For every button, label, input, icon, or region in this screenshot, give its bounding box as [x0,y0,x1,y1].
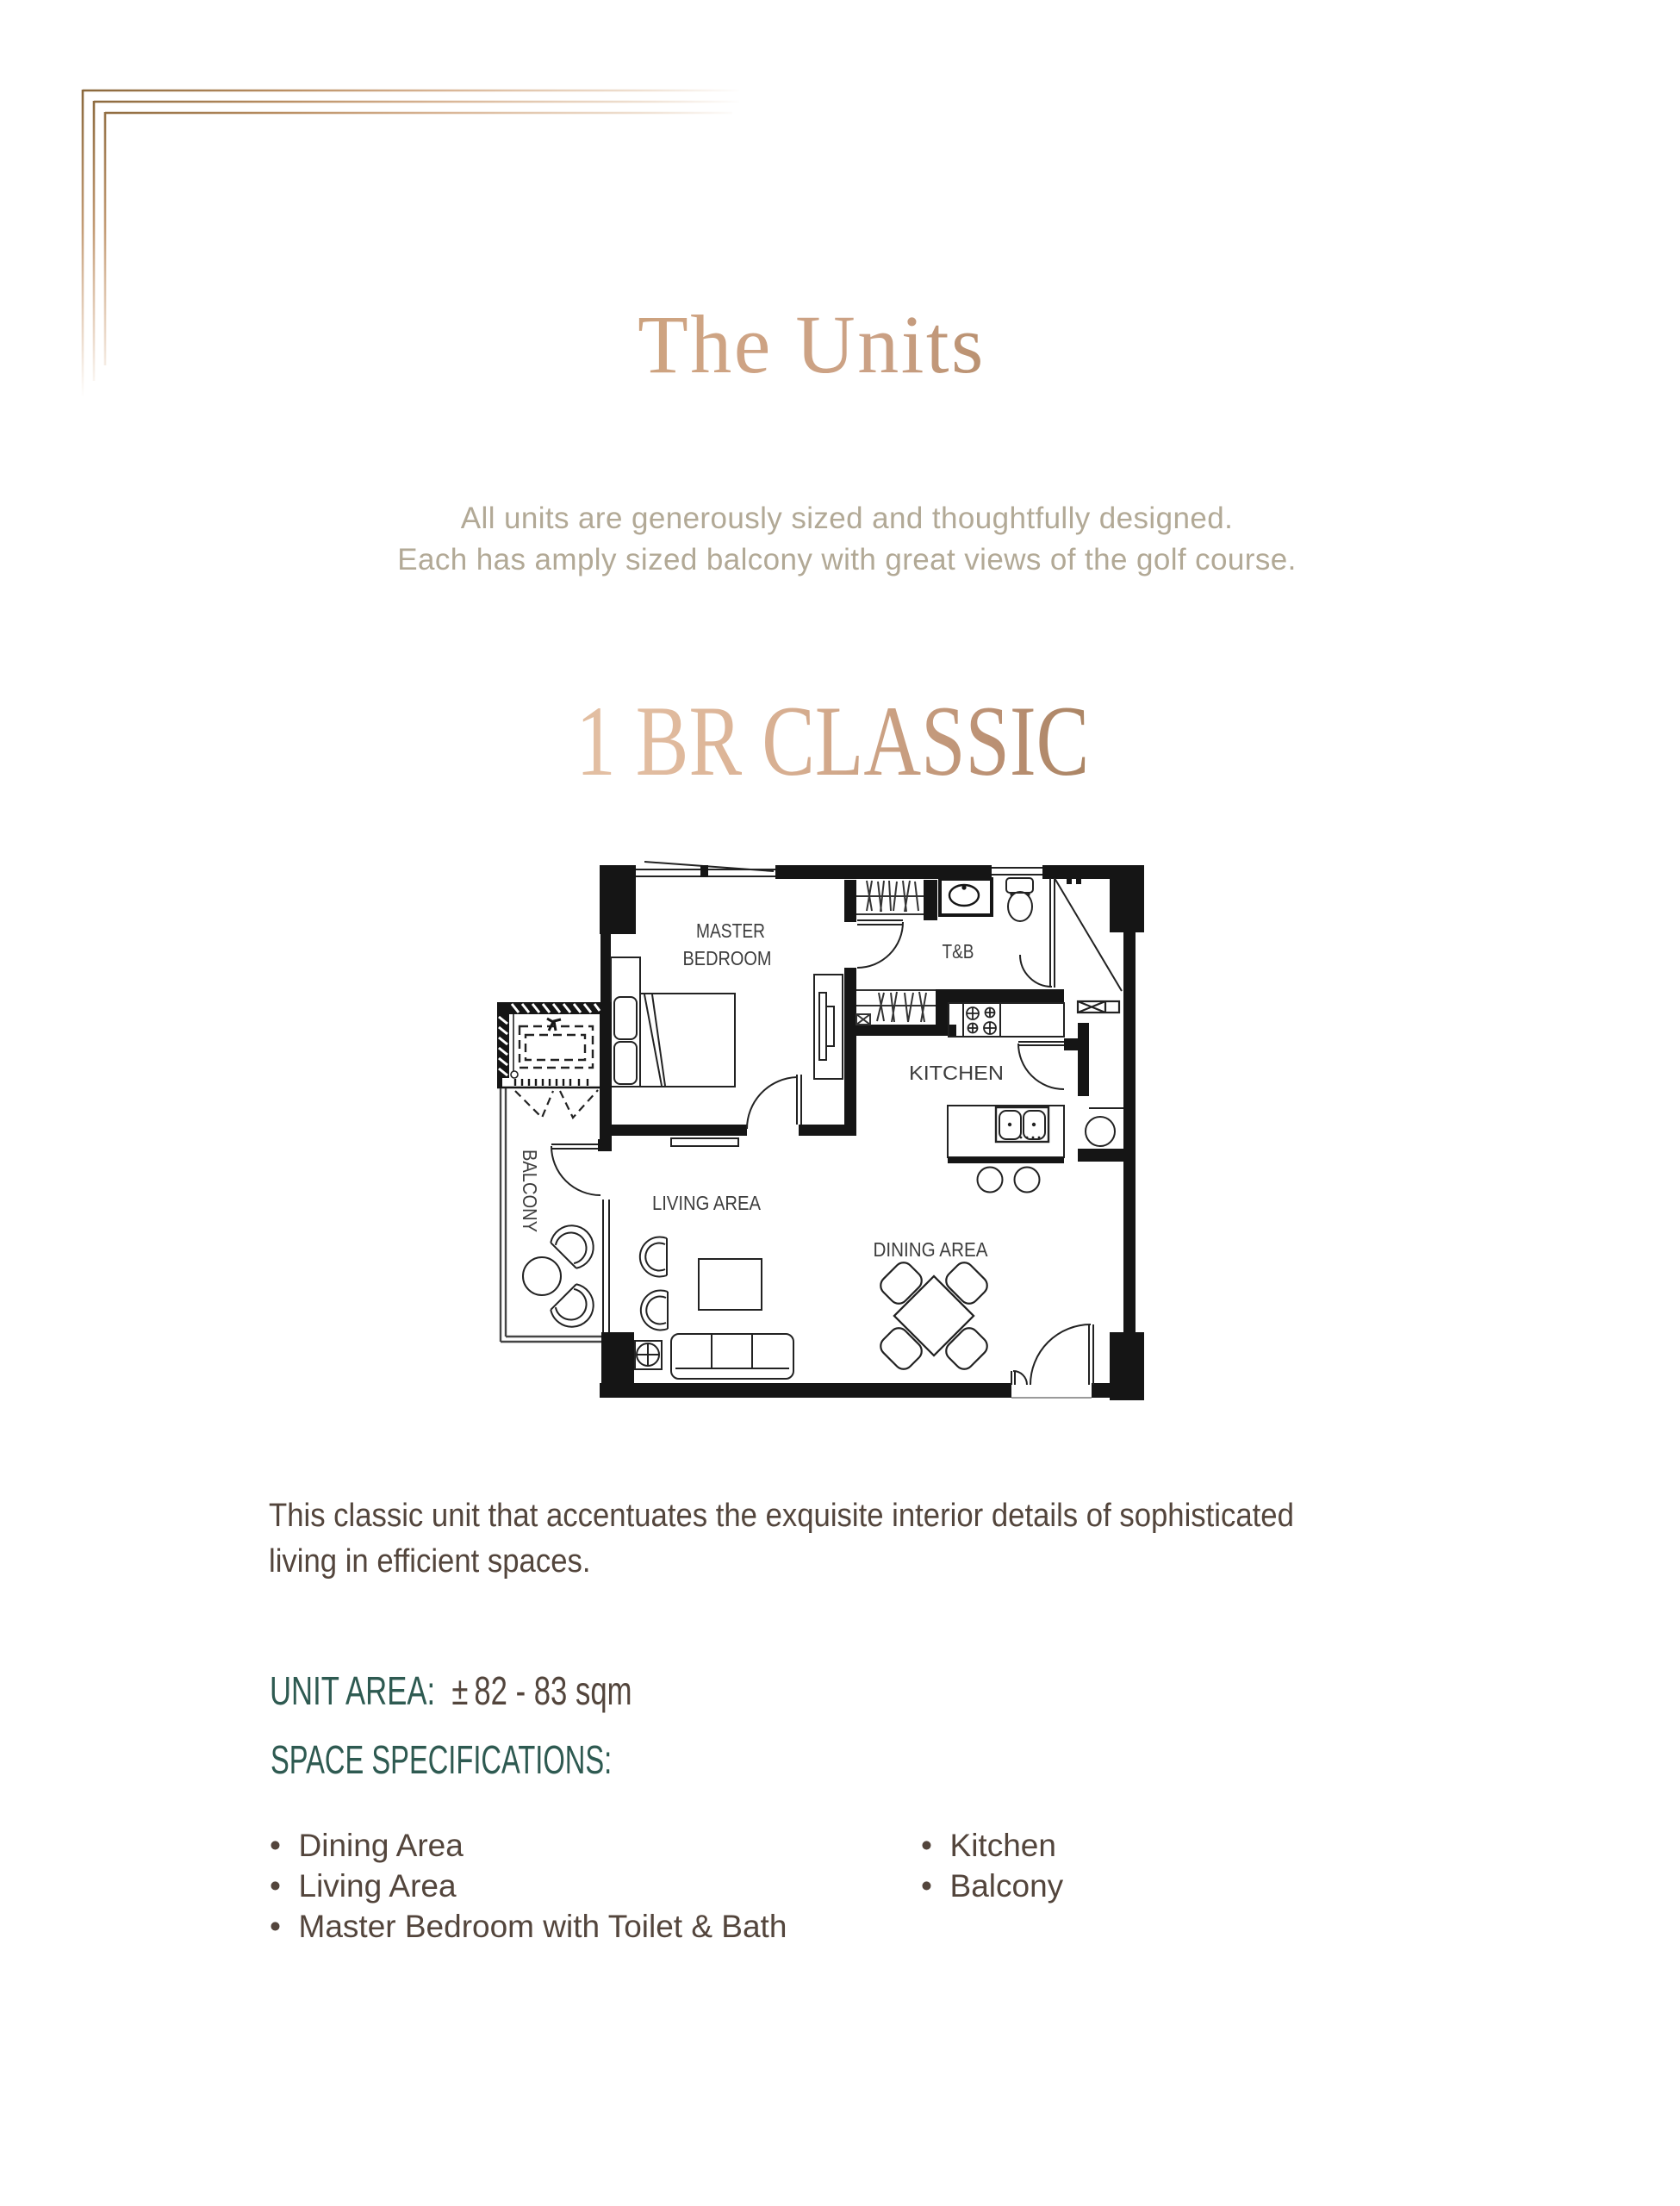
svg-text:KITCHEN: KITCHEN [909,1062,1004,1084]
svg-text:BALCONY: BALCONY [519,1150,541,1232]
svg-text:MASTER: MASTER [696,919,765,942]
svg-text:LIVING AREA: LIVING AREA [652,1192,762,1214]
svg-text:DINING AREA: DINING AREA [874,1238,989,1261]
svg-text:BEDROOM: BEDROOM [683,947,772,969]
svg-text:T&B: T&B [943,940,974,963]
